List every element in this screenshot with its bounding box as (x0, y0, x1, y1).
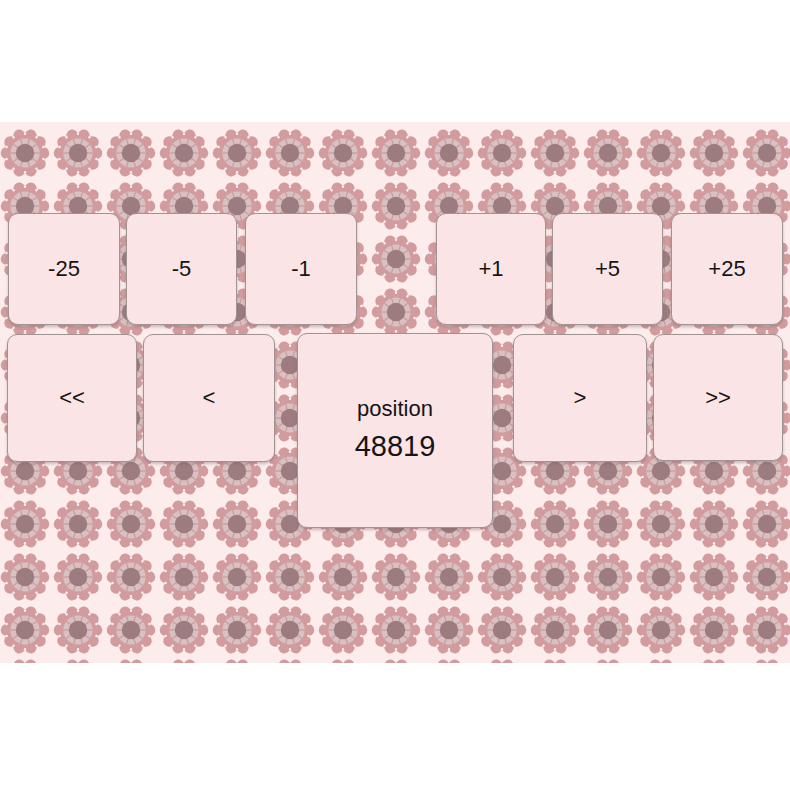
flower-icon (212, 499, 262, 549)
flower-icon (424, 658, 474, 663)
flower-icon (689, 128, 739, 178)
flower-icon (742, 128, 790, 178)
flower-icon (318, 552, 368, 602)
flower-icon (583, 499, 633, 549)
flower-icon (265, 658, 315, 663)
flower-icon (583, 128, 633, 178)
flower-icon (106, 605, 156, 655)
flower-icon (53, 552, 103, 602)
flower-icon (689, 605, 739, 655)
flower-icon (583, 658, 633, 663)
flower-icon (689, 552, 739, 602)
step-button-plus-5[interactable]: +5 (552, 213, 663, 325)
step-button-minus-5[interactable]: -5 (126, 213, 237, 325)
flower-icon (0, 128, 50, 178)
step-button-minus-1[interactable]: -1 (245, 213, 357, 325)
page: -25 -5 -1 +1 +5 +25 << < > >> position 4… (0, 0, 790, 790)
flower-icon (212, 605, 262, 655)
flower-icon (159, 658, 209, 663)
flower-icon (0, 605, 50, 655)
flower-icon (212, 658, 262, 663)
flower-icon (371, 552, 421, 602)
flower-icon (530, 658, 580, 663)
flower-icon (106, 552, 156, 602)
flower-icon (318, 605, 368, 655)
flower-icon (742, 658, 790, 663)
flower-icon (371, 128, 421, 178)
flower-icon (106, 128, 156, 178)
flower-icon (636, 605, 686, 655)
flower-icon (0, 658, 50, 663)
flower-icon (636, 552, 686, 602)
flower-icon (742, 552, 790, 602)
step-button-minus-25[interactable]: -25 (8, 213, 120, 325)
flower-icon (53, 658, 103, 663)
flower-icon (159, 605, 209, 655)
flower-icon (265, 128, 315, 178)
position-display: position 48819 (297, 333, 493, 528)
flower-icon (424, 552, 474, 602)
flower-icon (212, 128, 262, 178)
flower-icon (424, 128, 474, 178)
flower-icon (636, 128, 686, 178)
flower-icon (689, 499, 739, 549)
flower-icon (265, 552, 315, 602)
flower-icon (530, 605, 580, 655)
flower-icon (371, 234, 421, 284)
nav-button-fast-forward[interactable]: >> (653, 334, 783, 461)
flower-icon (636, 499, 686, 549)
flower-icon (371, 287, 421, 337)
nav-button-fast-back[interactable]: << (7, 334, 137, 462)
position-label: position (357, 395, 433, 424)
flower-icon (477, 658, 527, 663)
flower-icon (371, 605, 421, 655)
flower-icon (106, 499, 156, 549)
flower-icon (53, 605, 103, 655)
flower-icon (159, 128, 209, 178)
flower-icon (689, 658, 739, 663)
flower-icon (371, 181, 421, 231)
flower-icon (371, 658, 421, 663)
flower-icon (530, 499, 580, 549)
flower-icon (106, 658, 156, 663)
step-button-plus-1[interactable]: +1 (436, 213, 546, 325)
flower-icon (265, 605, 315, 655)
flower-icon (477, 128, 527, 178)
flower-icon (318, 128, 368, 178)
flower-icon (583, 552, 633, 602)
nav-button-forward[interactable]: > (513, 334, 647, 462)
flower-icon (318, 658, 368, 663)
flower-icon (0, 499, 50, 549)
flower-icon (53, 128, 103, 178)
nav-button-back[interactable]: < (143, 334, 275, 462)
flower-icon (636, 658, 686, 663)
flower-icon (53, 499, 103, 549)
flower-icon (0, 552, 50, 602)
flower-icon (742, 499, 790, 549)
flower-icon (530, 128, 580, 178)
flower-icon (212, 552, 262, 602)
flower-icon (583, 605, 633, 655)
step-button-plus-25[interactable]: +25 (671, 213, 783, 325)
flower-icon (742, 605, 790, 655)
flower-icon (477, 552, 527, 602)
flower-icon (159, 552, 209, 602)
position-value: 48819 (355, 428, 436, 466)
flower-icon (530, 552, 580, 602)
flower-icon (424, 605, 474, 655)
flower-icon (477, 605, 527, 655)
flower-icon (159, 499, 209, 549)
